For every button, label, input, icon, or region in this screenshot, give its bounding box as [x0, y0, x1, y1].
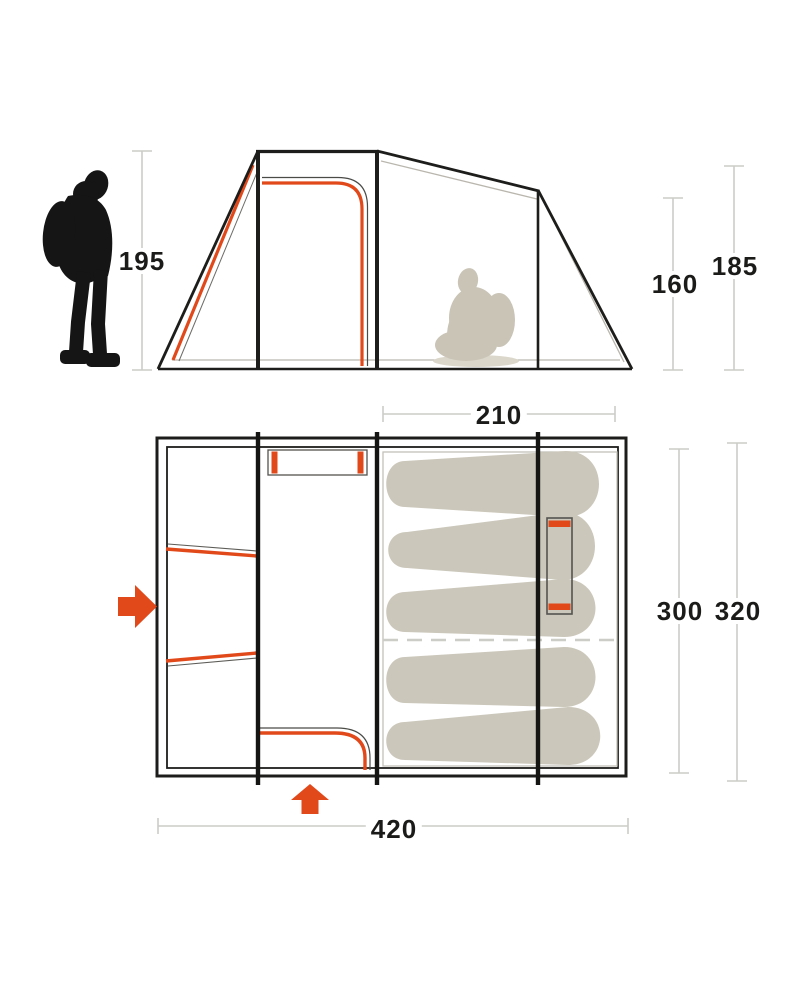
- cabin-door-outline: [262, 178, 368, 367]
- tent-diagram-canvas: 195 160 185 210 300 320 420: [0, 0, 800, 1000]
- cabin-door-edge: [262, 183, 362, 366]
- person-seated-icon: [433, 266, 519, 367]
- porch-window-bottom: [166, 653, 257, 661]
- dim-label-cabin-height: 160: [647, 271, 703, 297]
- sleeping-bag: [386, 451, 599, 517]
- tent-outline: [158, 150, 632, 370]
- cabin-top-window: [268, 450, 367, 475]
- dim-label-front-height: 195: [114, 248, 170, 274]
- front-door-edge-outline: [179, 170, 258, 361]
- roof-slope: [377, 151, 539, 191]
- dim-label-rear-height: 185: [707, 253, 763, 279]
- dim-label-inner-depth: 300: [652, 598, 708, 624]
- front-slope: [158, 151, 258, 369]
- rear-slope: [538, 190, 632, 369]
- dim-label-sleeping-width: 210: [471, 402, 527, 428]
- arrow-right-icon: [118, 585, 157, 628]
- person-standing-icon: [40, 167, 120, 367]
- front-door-edge: [173, 165, 253, 360]
- dim-label-total-length: 420: [366, 816, 422, 842]
- arrow-up-icon: [291, 784, 329, 814]
- dim-label-outer-depth: 320: [710, 598, 766, 624]
- side-view-dimension-lines: [132, 151, 744, 370]
- sleeping-bag: [386, 707, 600, 765]
- tent-diagram-svg: [0, 0, 800, 1000]
- front-entrance-edge: [260, 733, 365, 770]
- sleeping-bag: [386, 647, 595, 707]
- porch-windows: [166, 544, 257, 666]
